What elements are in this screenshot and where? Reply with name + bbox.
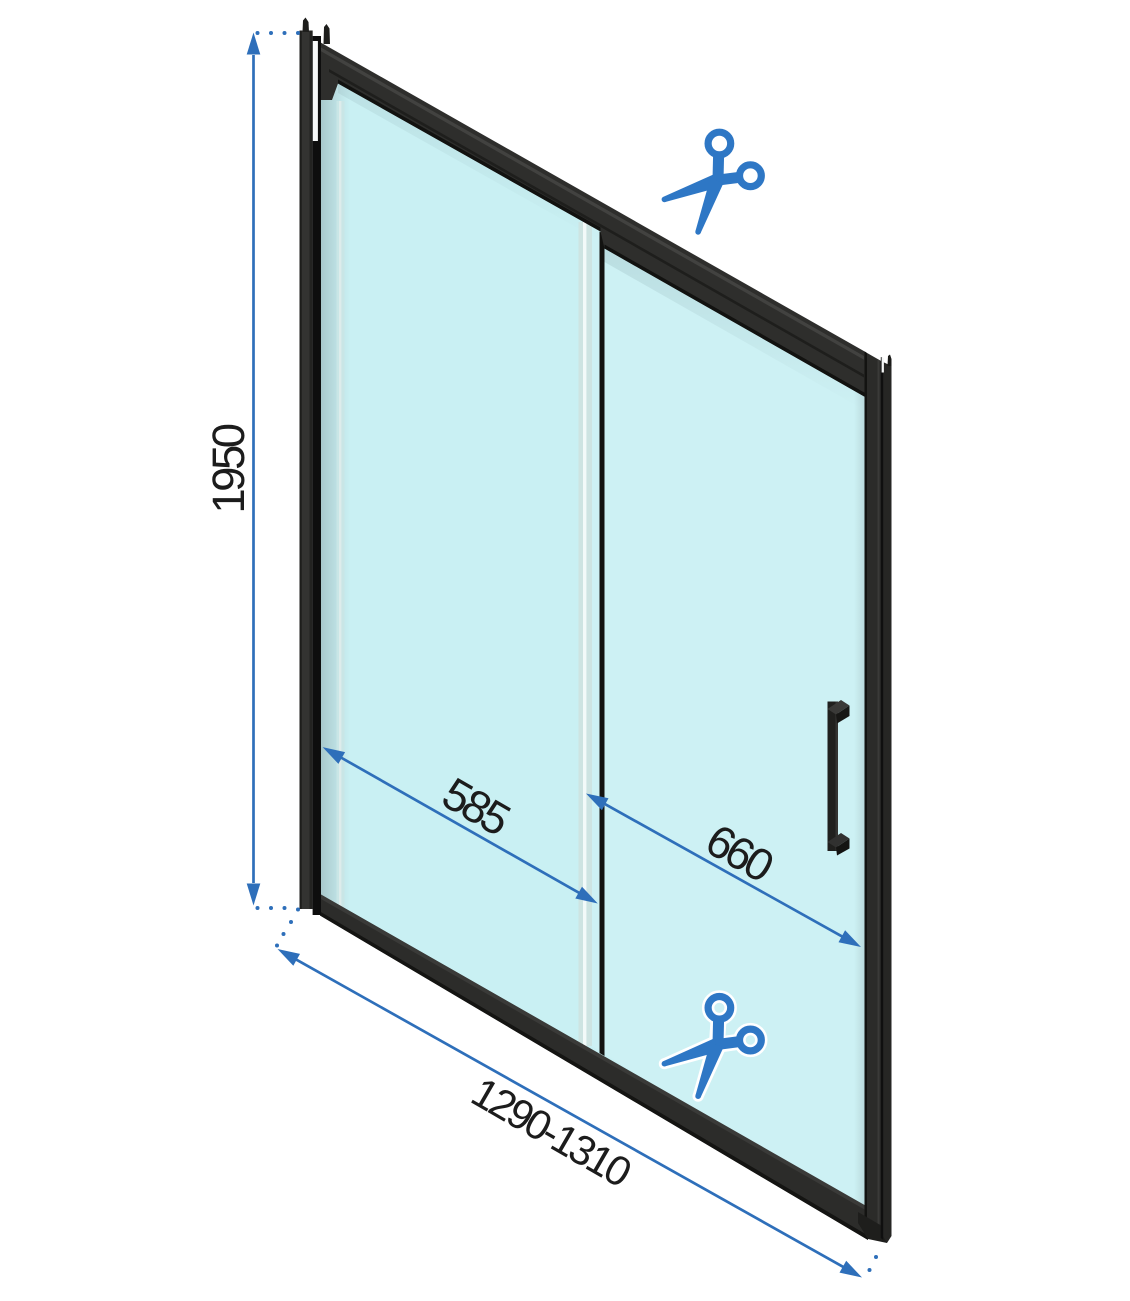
svg-text:1950: 1950: [203, 424, 254, 513]
